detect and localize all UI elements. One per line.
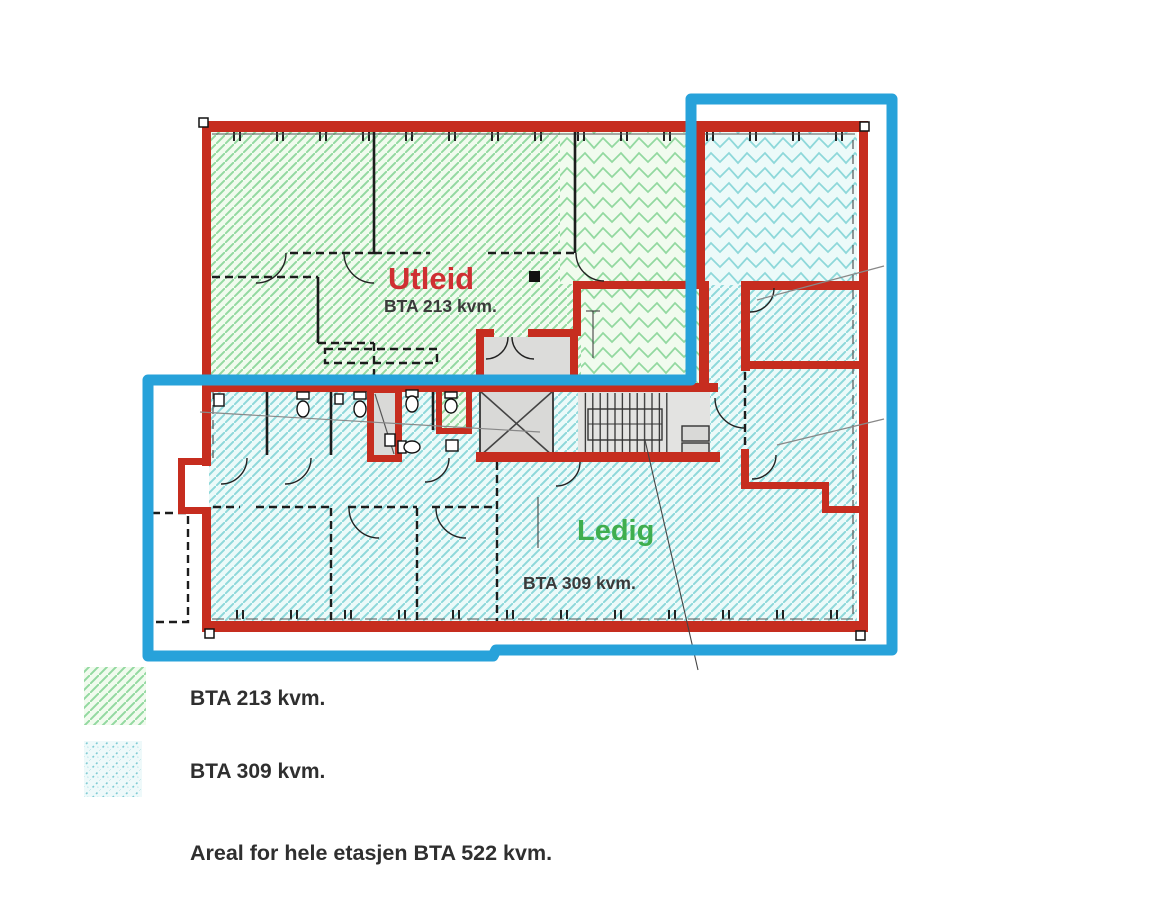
legend-swatch-blue bbox=[84, 741, 142, 797]
legend: BTA 213 kvm. BTA 309 kvm. Areal for hele… bbox=[84, 667, 552, 865]
utleid-chevron-hatch bbox=[560, 132, 694, 284]
legend-rented-label: BTA 213 kvm. bbox=[190, 687, 325, 710]
exterior-stair-outline bbox=[152, 513, 188, 622]
floor-plan-drawing: Utleid BTA 213 kvm. Ledig BTA 309 kvm. B… bbox=[0, 0, 1156, 900]
ledig-chevron-hatch bbox=[705, 131, 857, 285]
red-room-hatch bbox=[581, 289, 699, 383]
ledig-area-label: BTA 309 kvm. bbox=[523, 573, 636, 593]
column-marker bbox=[529, 271, 540, 282]
utleid-area-label: BTA 213 kvm. bbox=[384, 296, 497, 316]
legend-total-label: Areal for hele etasjen BTA 522 kvm. bbox=[190, 841, 552, 865]
utleid-title: Utleid bbox=[388, 261, 474, 296]
legend-swatch-green bbox=[84, 667, 146, 725]
floor-plan-page: Utleid BTA 213 kvm. Ledig BTA 309 kvm. B… bbox=[0, 0, 1156, 900]
ledig-title: Ledig bbox=[577, 515, 654, 547]
legend-vacant-label: BTA 309 kvm. bbox=[190, 760, 325, 783]
